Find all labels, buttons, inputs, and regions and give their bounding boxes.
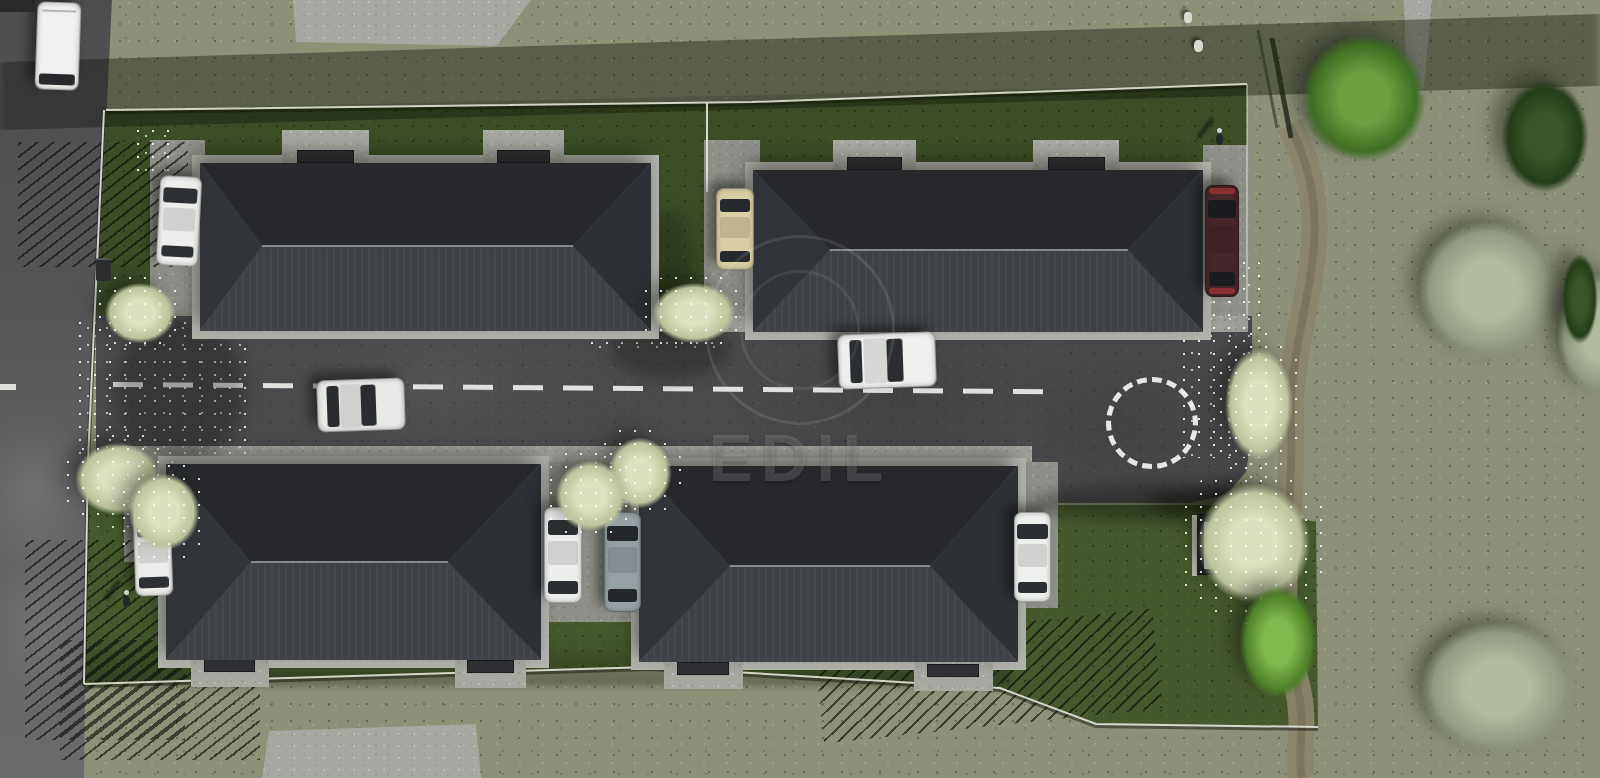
house-3-entrance-mat-2 <box>467 660 514 673</box>
car-dark-red-rear-accent <box>1209 288 1235 294</box>
sage-tree-3 <box>1393 598 1600 778</box>
car-white-4-rear-glass <box>1018 582 1047 593</box>
house-3-entrance-pad-1 <box>191 657 269 687</box>
car-dark-red-rear-glass <box>1209 272 1235 286</box>
dark-bush-1 <box>1486 60 1600 212</box>
car-dark-red-windshield <box>1208 200 1236 218</box>
house-3-ridge <box>251 561 448 563</box>
car-white-road-1-windshield <box>886 338 904 382</box>
car-beige-windshield <box>720 199 751 212</box>
car-white-road-2-rear-glass <box>327 385 340 426</box>
car-white-road-1-roof <box>863 338 888 384</box>
house-4-entrance-pad-2 <box>914 662 993 691</box>
van-white <box>34 1 81 90</box>
house-1-entrance-mat-2 <box>497 150 550 163</box>
house-1-roof <box>200 163 651 331</box>
van-white-roof-line <box>42 9 76 12</box>
car-gray-rear-glass <box>608 589 637 602</box>
house-4-entrance-pad-1 <box>664 660 743 689</box>
car-white-road-2-roof <box>340 384 362 428</box>
car-white-3-roof <box>548 541 578 565</box>
house-3-entrance-mat-1 <box>204 659 255 672</box>
car-white-1-roof <box>162 207 196 232</box>
house-4-entrance-mat-2 <box>927 664 979 677</box>
house-2-entrance-pad-1 <box>833 140 916 172</box>
small-figure-1 <box>1184 12 1192 23</box>
house-4-entrance-mat-1 <box>677 662 729 675</box>
car-dark-red-roof <box>1209 225 1235 254</box>
car-dark-red <box>1205 185 1239 297</box>
house-1-entrance-pad-1 <box>282 130 369 165</box>
person-2-body <box>123 596 130 607</box>
waste-bin <box>96 258 111 281</box>
person-2-head <box>124 590 129 595</box>
person-1-body <box>1216 134 1223 145</box>
dark-bush-2 <box>1556 238 1600 360</box>
car-white-road-1 <box>837 331 937 389</box>
person-2 <box>120 590 132 610</box>
car-white-1-windshield <box>163 188 198 204</box>
house-2-entrance-pad-2 <box>1033 140 1119 172</box>
car-beige-rear-glass <box>720 251 750 261</box>
house-4-ridge <box>730 565 930 567</box>
car-white-4-windshield <box>1017 524 1047 538</box>
car-white-1-rear-glass <box>161 245 194 258</box>
house-1-ridge <box>262 245 573 247</box>
house-2-entrance-mat-1 <box>847 157 902 170</box>
car-white-4-roof <box>1018 544 1047 567</box>
car-white-road-2 <box>316 377 406 432</box>
parked-vehicle-edge <box>0 0 36 12</box>
car-beige-roof <box>720 217 750 238</box>
house-4-roof <box>639 466 1018 662</box>
person-1 <box>1213 128 1225 148</box>
car-beige <box>716 188 754 270</box>
house-2-roof <box>753 170 1203 332</box>
car-white-2-rear-glass <box>139 576 169 588</box>
house-3-entrance-pad-2 <box>455 658 526 688</box>
house-2-ridge <box>830 249 1128 251</box>
aerial-site-render: EDIL <box>0 0 1600 778</box>
house-2-entrance-mat-2 <box>1048 157 1105 170</box>
van-white-windshield <box>39 74 75 86</box>
house-1-entrance-mat-1 <box>297 150 354 163</box>
car-white-4 <box>1014 512 1051 602</box>
car-gray-roof <box>608 547 637 572</box>
person-1-head <box>1217 128 1222 133</box>
car-white-3-rear-glass <box>548 581 578 593</box>
house-1-entrance-pad-2 <box>483 130 564 165</box>
small-figure-2 <box>1194 40 1203 52</box>
car-white-road-2-windshield <box>360 384 376 425</box>
car-dark-red-front-accent <box>1209 188 1235 194</box>
house-3-roof <box>166 464 541 660</box>
car-white-1 <box>156 175 203 267</box>
car-white-road-1-rear-glass <box>849 340 863 384</box>
